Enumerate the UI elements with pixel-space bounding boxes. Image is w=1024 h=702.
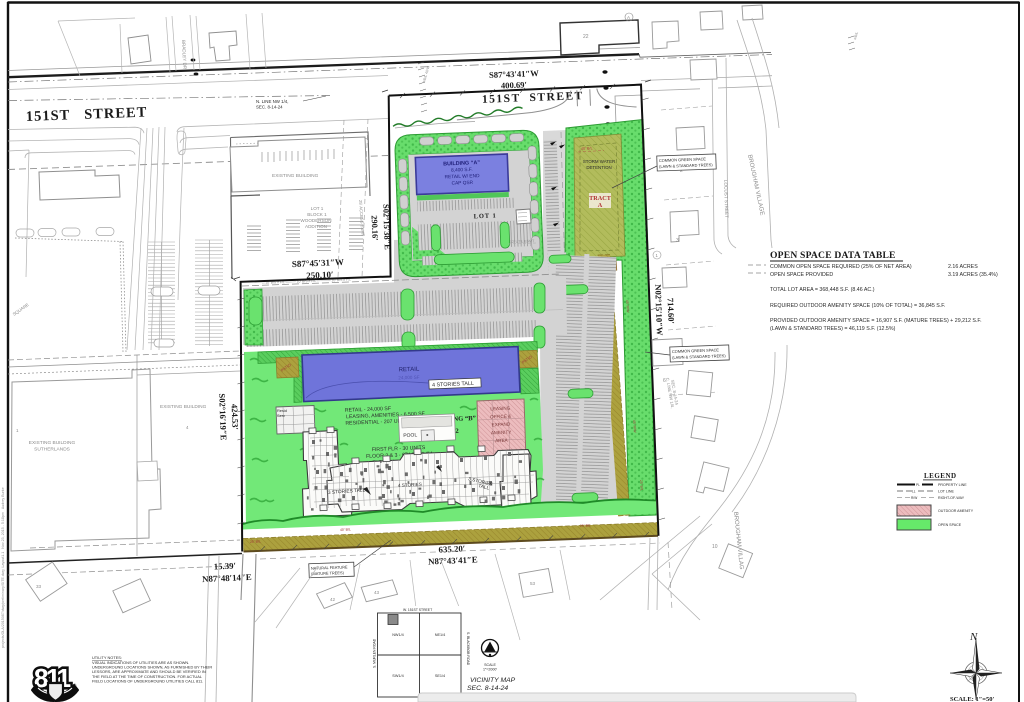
svg-text:NE1/4: NE1/4 [435, 633, 446, 637]
svg-text:25′ B/L: 25′ B/L [250, 540, 261, 544]
svg-text:OPEN SPACE: OPEN SPACE [938, 523, 962, 527]
svg-text:LL: LL [912, 490, 916, 494]
svg-text:RETAIL: RETAIL [399, 367, 420, 374]
svg-text:POOL: POOL [403, 432, 417, 439]
svg-text:AREA: AREA [495, 438, 509, 443]
svg-text:LOT LINE: LOT LINE [938, 490, 955, 494]
svg-text:SCALE: SCALE [484, 663, 496, 667]
svg-text:1″=2000′: 1″=2000′ [483, 668, 497, 672]
svg-text:40′ B/L: 40′ B/L [581, 146, 593, 151]
svg-text:SUTHERLANDS: SUTHERLANDS [34, 447, 70, 453]
svg-text:714.60′: 714.60′ [666, 298, 677, 324]
svg-text:635.20′: 635.20′ [438, 543, 465, 554]
svg-text:VICINITY MAP: VICINITY MAP [470, 677, 516, 684]
svg-text:BLOCK 1: BLOCK 1 [307, 212, 327, 217]
svg-text:EXPAND: EXPAND [492, 422, 511, 428]
svg-text:DETENTION: DETENTION [586, 165, 611, 170]
svg-text:3: 3 [676, 238, 679, 244]
svg-text:STORM WATER: STORM WATER [583, 159, 615, 164]
svg-text:Serv: Serv [277, 413, 285, 418]
svg-text:8,400 S.F.: 8,400 S.F. [451, 167, 473, 174]
svg-text:TOTAL LOT AREA = 368,448 S.F.: TOTAL LOT AREA = 368,448 S.F. (8.46 AC.) [770, 287, 875, 293]
svg-text:S02°16′19″E: S02°16′19″E [217, 393, 229, 440]
svg-text:33: 33 [36, 584, 42, 589]
svg-text:6: 6 [663, 378, 666, 384]
svg-text:42: 42 [330, 597, 336, 602]
svg-text:N: N [969, 631, 978, 643]
svg-text:LEASING: LEASING [490, 406, 511, 412]
svg-text:15.39′: 15.39′ [214, 561, 237, 572]
svg-text:10: 10 [712, 544, 718, 550]
svg-text:43: 43 [374, 590, 380, 595]
svg-text:OPEN SPACE DATA TABLE: OPEN SPACE DATA TABLE [770, 250, 896, 261]
svg-text:A: A [627, 15, 630, 20]
svg-text:OUTDOOR AMENITY: OUTDOOR AMENITY [938, 509, 974, 513]
svg-text:CAP QSR: CAP QSR [451, 180, 473, 187]
svg-text:40′ B/L: 40′ B/L [340, 528, 351, 532]
svg-text:EXISTING BUILDING: EXISTING BUILDING [272, 173, 319, 179]
svg-text:LEGEND: LEGEND [924, 472, 957, 480]
svg-text:TRACT: TRACT [589, 195, 612, 202]
svg-text:OFFICE &: OFFICE & [490, 414, 511, 420]
svg-text:COMMON OPEN SPACE REQUIRED (25: COMMON OPEN SPACE REQUIRED (25% OF NET A… [770, 264, 912, 270]
svg-text:S. BLACKBOB ROAD: S. BLACKBOB ROAD [466, 632, 470, 666]
svg-text:S. MURLEN ROAD: S. MURLEN ROAD [373, 638, 377, 668]
svg-text:25′ B/L: 25′ B/L [580, 524, 591, 528]
svg-text:SEC. 8-14-24: SEC. 8-14-24 [467, 685, 508, 692]
svg-text:N. LINE NW 1/4,: N. LINE NW 1/4, [256, 99, 288, 104]
svg-text:53: 53 [530, 581, 536, 586]
svg-text:25′ B/L: 25′ B/L [639, 480, 644, 491]
svg-text:EXISTING BUILDING: EXISTING BUILDING [29, 440, 76, 446]
svg-text:R/W: R/W [911, 496, 917, 500]
svg-text:OPEN SPACE PROVIDED: OPEN SPACE PROVIDED [770, 272, 833, 278]
svg-text:projects/OLA/2015087/dwg/preli: projects/OLA/2015087/dwg/preliminary/SIT… [1, 487, 5, 648]
svg-text:NW1/4: NW1/4 [392, 633, 404, 637]
svg-text:A: A [598, 202, 603, 209]
svg-text:ADDITION: ADDITION [305, 224, 327, 229]
svg-text:AMENITY: AMENITY [491, 430, 512, 436]
svg-text:290.16′: 290.16′ [370, 215, 380, 241]
svg-text:22: 22 [583, 34, 589, 40]
svg-text:N02°15′10″W: N02°15′10″W [653, 284, 665, 336]
svg-text:SCALE: 1″=50′: SCALE: 1″=50′ [950, 696, 995, 702]
svg-text:SEC. 8-14-24: SEC. 8-14-24 [256, 105, 283, 110]
svg-text:REQUIRED OUTDOOR AMENITY SPACE: REQUIRED OUTDOOR AMENITY SPACE (10% OF T… [770, 303, 945, 309]
svg-text:LOT 1: LOT 1 [473, 212, 496, 220]
svg-text:(LAWN & STANDARD TREES) = 46,1: (LAWN & STANDARD TREES) = 46,119 S.F. (1… [770, 326, 896, 332]
svg-text:24,000 SF: 24,000 SF [398, 375, 420, 381]
svg-text:SW1/4: SW1/4 [392, 674, 403, 678]
svg-text:PROPERTY LINE: PROPERTY LINE [938, 483, 967, 487]
svg-text:W. 151ST STREET: W. 151ST STREET [403, 608, 432, 612]
svg-text:EXISTING BUILDING: EXISTING BUILDING [160, 404, 207, 410]
svg-text:FIELD LOCATIONS OF UNDERGROUND: FIELD LOCATIONS OF UNDERGROUND UTILITIES… [92, 678, 203, 683]
svg-text:PROVIDED OUTDOOR AMENITY SPACE: PROVIDED OUTDOOR AMENITY SPACE = 16,907 … [770, 318, 982, 324]
svg-text:2.16 ACRES: 2.16 ACRES [948, 264, 978, 270]
svg-text:S87°43′41″W: S87°43′41″W [489, 68, 539, 80]
svg-text:SE1/4: SE1/4 [435, 674, 445, 678]
svg-text:3.19 ACRES (35.4%): 3.19 ACRES (35.4%) [948, 272, 998, 278]
svg-text:RIGHT-OF-WAY: RIGHT-OF-WAY [938, 496, 965, 500]
svg-text:LOT 1: LOT 1 [311, 206, 324, 211]
svg-text:PL: PL [916, 483, 920, 487]
svg-text:424.53′: 424.53′ [230, 404, 241, 430]
